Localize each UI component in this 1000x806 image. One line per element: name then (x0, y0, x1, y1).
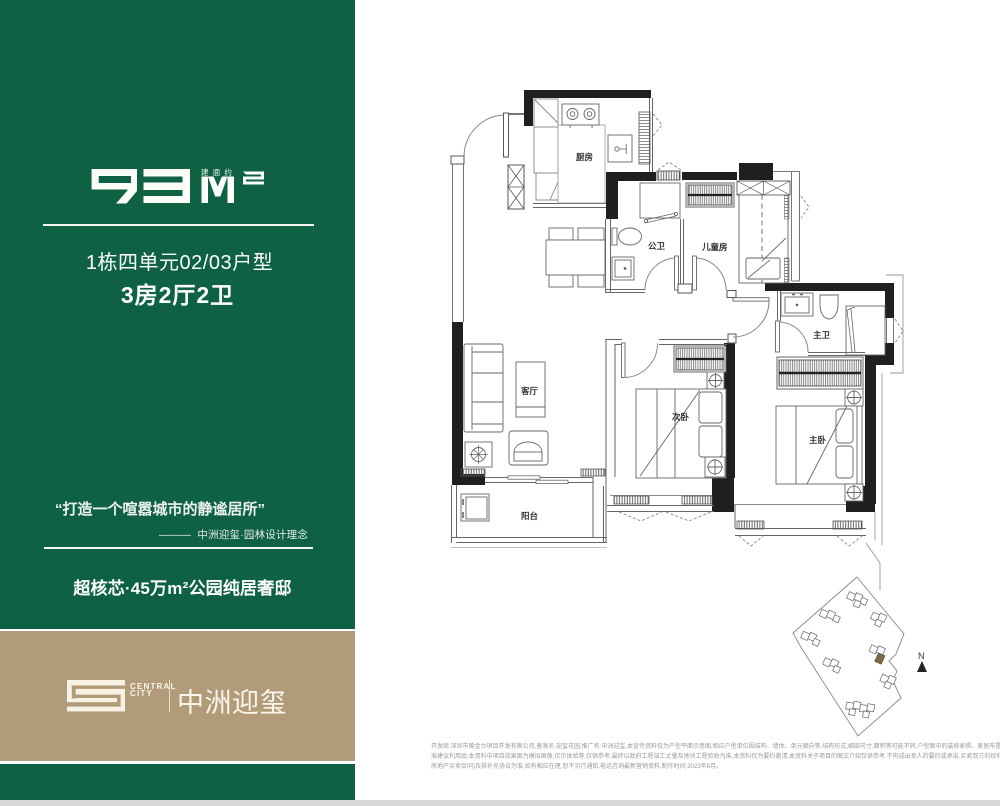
svg-text:主卫: 主卫 (813, 330, 831, 340)
svg-text:客厅: 客厅 (520, 386, 539, 396)
svg-text:阳台: 阳台 (521, 511, 539, 521)
svg-text:建面约: 建面约 (201, 167, 236, 177)
svg-text:儿童房: 儿童房 (701, 242, 728, 252)
svg-text:主卧: 主卧 (809, 435, 827, 445)
svg-text:公卫: 公卫 (648, 241, 666, 251)
svg-text:N: N (918, 651, 925, 661)
svg-text:次卧: 次卧 (672, 412, 690, 422)
svg-text:厨房: 厨房 (576, 152, 593, 162)
